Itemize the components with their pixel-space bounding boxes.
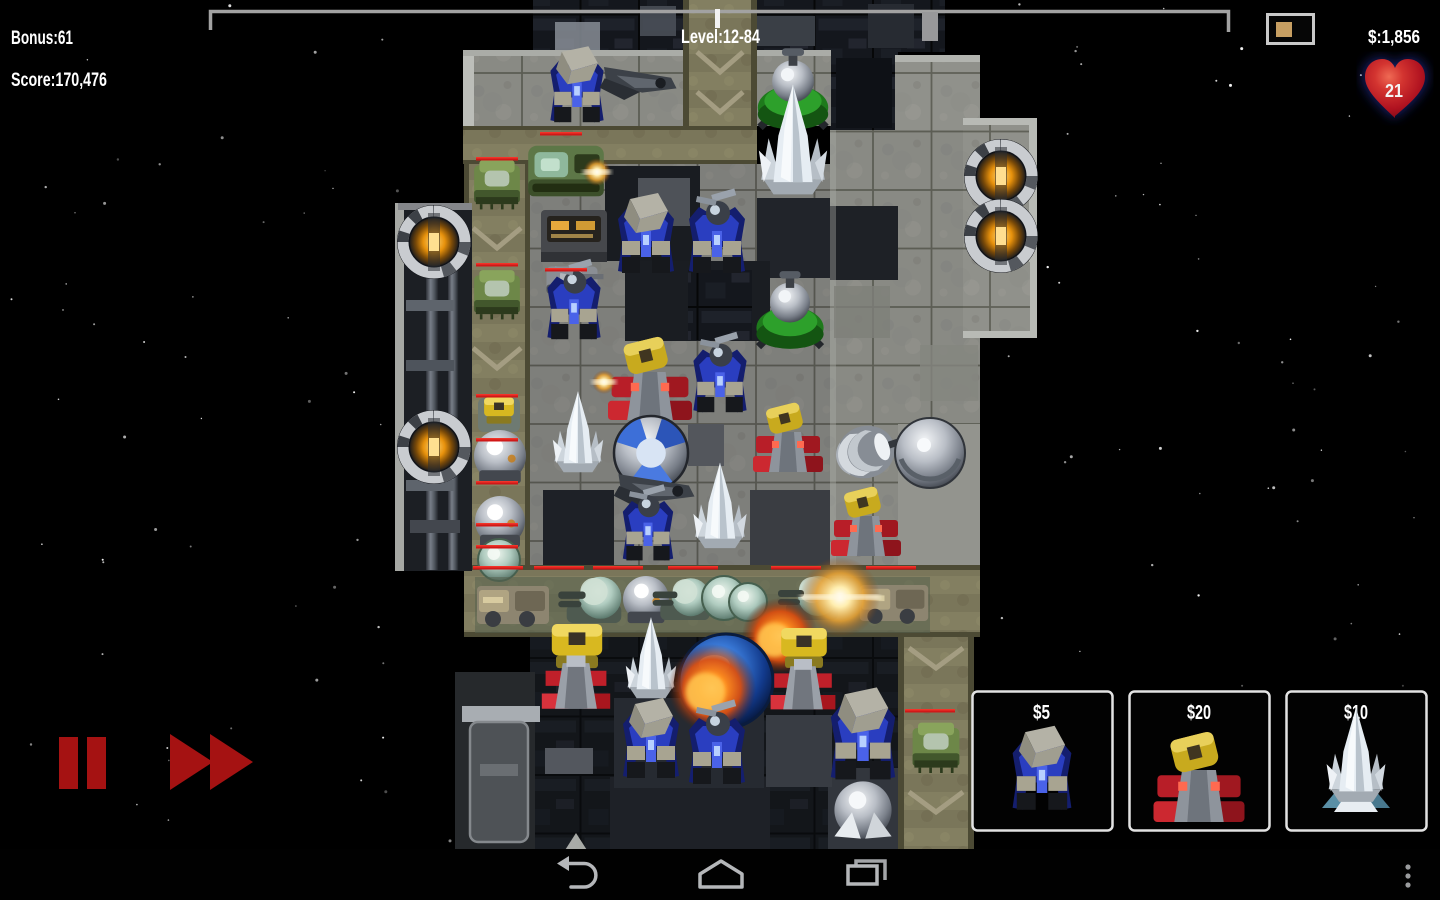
- svg-text:$20: $20: [1187, 702, 1211, 724]
- svg-text:Level:12-84: Level:12-84: [681, 27, 760, 48]
- svg-text:21: 21: [1385, 81, 1403, 101]
- svg-text:Score:170,476: Score:170,476: [11, 70, 107, 91]
- svg-text:$5: $5: [1033, 702, 1050, 724]
- svg-text:Bonus:61: Bonus:61: [11, 28, 73, 49]
- svg-text:$:1,856: $:1,856: [1368, 27, 1420, 47]
